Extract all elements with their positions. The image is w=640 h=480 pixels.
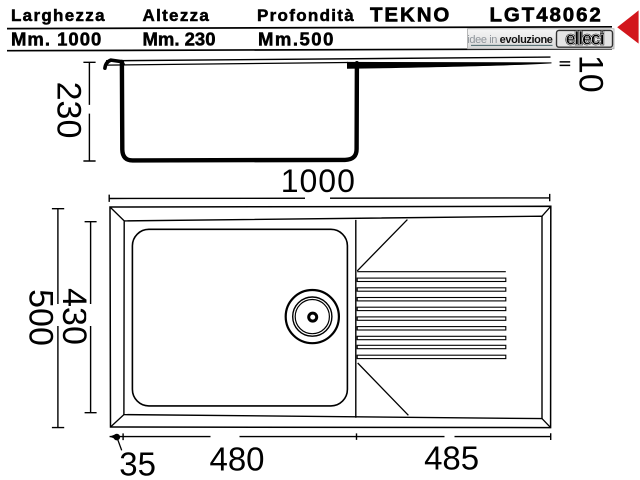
svg-text:230: 230 <box>50 82 88 139</box>
svg-text:1000: 1000 <box>281 163 356 199</box>
svg-text:485: 485 <box>424 440 479 477</box>
svg-text:idee in evoluzione: idee in evoluzione <box>467 34 552 46</box>
svg-text:TEKNO: TEKNO <box>370 4 451 27</box>
svg-text:Mm. 230: Mm. 230 <box>143 29 216 50</box>
svg-text:35: 35 <box>119 446 156 480</box>
svg-text:elleci: elleci <box>566 28 604 48</box>
svg-text:10: 10 <box>572 55 610 93</box>
svg-text:480: 480 <box>209 440 264 477</box>
svg-text:Altezza: Altezza <box>143 6 211 25</box>
svg-text:Mm.500: Mm.500 <box>258 29 335 50</box>
svg-text:Mm. 1000: Mm. 1000 <box>11 29 102 50</box>
svg-text:LGT48062: LGT48062 <box>490 4 603 27</box>
svg-text:Larghezza: Larghezza <box>11 6 106 25</box>
svg-text:Profondità: Profondità <box>257 6 355 25</box>
